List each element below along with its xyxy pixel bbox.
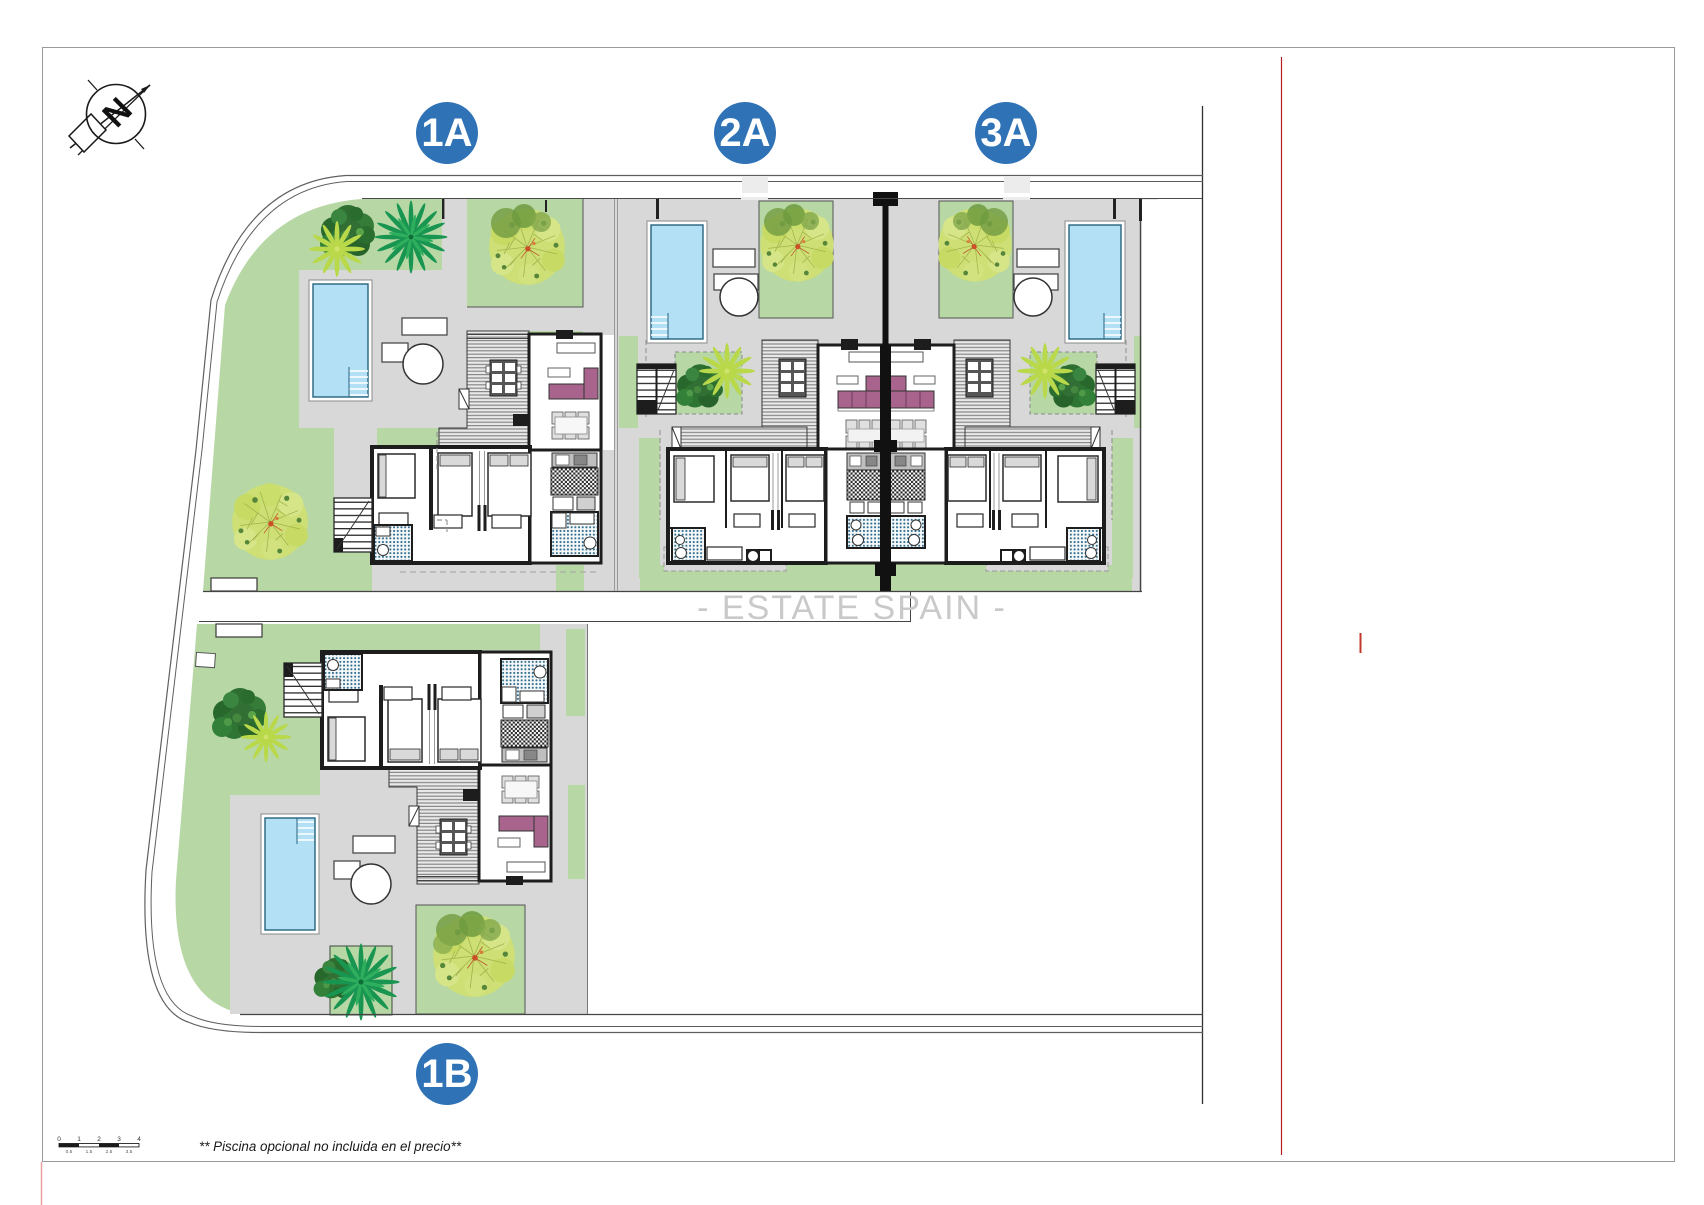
- svg-text:1: 1: [77, 1136, 81, 1143]
- svg-text:2: 2: [97, 1136, 101, 1143]
- svg-text:2A: 2A: [719, 111, 770, 155]
- svg-text:4: 4: [137, 1136, 141, 1143]
- svg-text:0.5: 0.5: [66, 1149, 73, 1155]
- svg-text:** Piscina opcional no incluid: ** Piscina opcional no incluida en el pr…: [199, 1139, 462, 1154]
- svg-text:1B: 1B: [421, 1052, 472, 1096]
- svg-text:3: 3: [117, 1136, 121, 1143]
- svg-text:- ESTATE SPAIN -: - ESTATE SPAIN -: [697, 589, 1007, 627]
- svg-text:1.5: 1.5: [86, 1149, 93, 1155]
- svg-text:0: 0: [57, 1136, 61, 1143]
- svg-text:3.5: 3.5: [126, 1149, 133, 1155]
- svg-text:1A: 1A: [421, 111, 472, 155]
- svg-text:2.5: 2.5: [106, 1149, 113, 1155]
- svg-text:3A: 3A: [980, 111, 1031, 155]
